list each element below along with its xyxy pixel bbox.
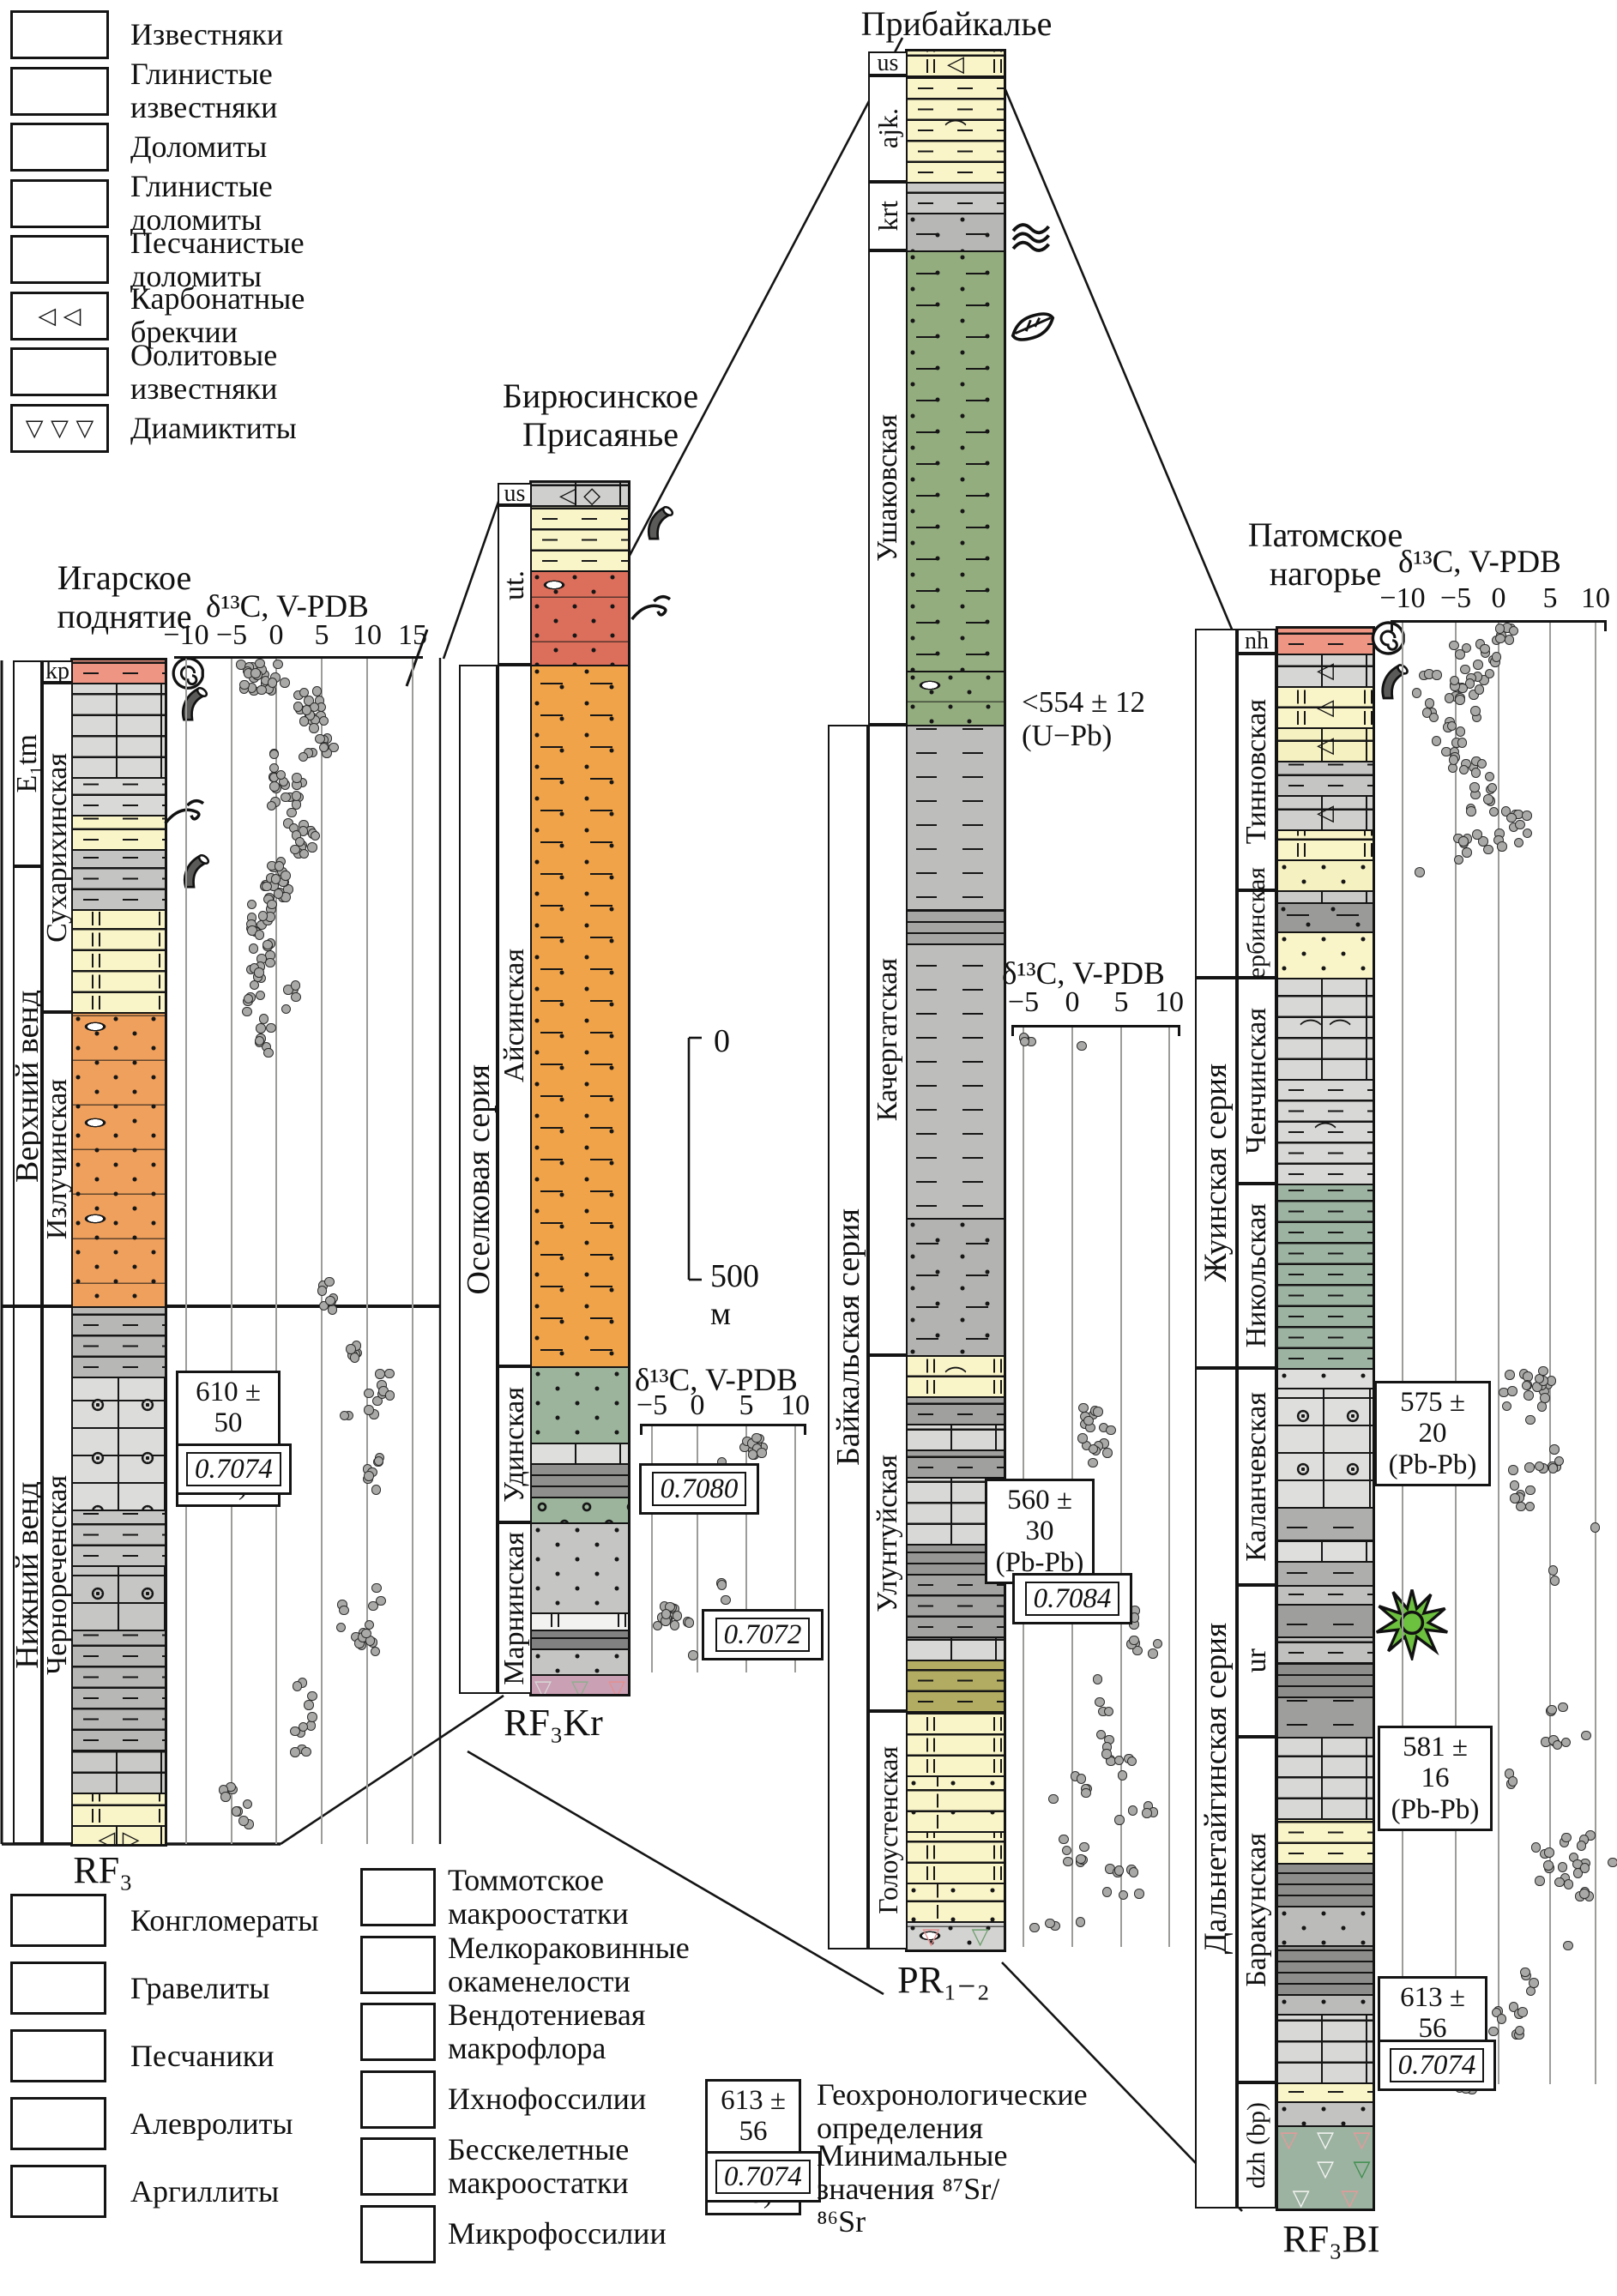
legend-icon-box [360, 2070, 436, 2129]
data-point [267, 900, 277, 910]
diagram-line [443, 485, 504, 659]
label-cell-igarka-3: kp [42, 660, 73, 683]
diamictite-glyph: ▽ [1317, 2156, 1334, 2182]
diamictite-glyph: ▽ [571, 1676, 588, 1694]
formation-label: nh [1245, 628, 1269, 655]
data-point [1457, 738, 1468, 748]
scale-bottom-label: 500 м [710, 1257, 759, 1333]
label-cell-birjusa-1: us [498, 483, 532, 505]
data-point [271, 874, 281, 884]
segment-patom-7 [1278, 859, 1373, 890]
data-point [1510, 1480, 1520, 1491]
segment-pribaikal-12 [908, 1424, 1004, 1449]
data-point [757, 1448, 767, 1458]
formation-label: us [878, 50, 899, 77]
label-cell-patom-6: Ченчинская [1237, 978, 1276, 1184]
data-point [1462, 847, 1472, 858]
axis-end-tick [1011, 1025, 1014, 1036]
formation-label: E₁tm [11, 734, 44, 793]
data-point [292, 773, 302, 783]
data-point [291, 992, 301, 1003]
data-point [239, 680, 250, 690]
segment-patom-0 [1278, 629, 1373, 654]
legend-swatch-limestone [10, 10, 109, 59]
gridline [185, 658, 187, 1844]
gridline [366, 658, 368, 1844]
label-cell-patom-5: Жербинская [1237, 890, 1276, 978]
horn-icon [172, 684, 212, 723]
segment-birjusa-1 [532, 505, 628, 570]
legend-glyph: ▽ ▽ ▽ [13, 407, 106, 450]
legend-label: Глинистые известняки [130, 62, 277, 121]
sr-value: 0.7084 [1025, 1582, 1120, 1616]
segment-patom-17 [1278, 1540, 1373, 1561]
segment-igarka-9 [73, 1510, 165, 1565]
label-cell-igarka-2: Нижний венд [13, 1306, 42, 1844]
data-point [368, 1601, 378, 1612]
segment-patom-5: ◁ [1278, 795, 1373, 829]
age-method: (Pb-Pb) [1384, 1449, 1481, 1480]
segment-birjusa-4 [532, 1366, 628, 1443]
data-point [256, 1023, 266, 1034]
segment-birjusa-8 [532, 1522, 628, 1612]
segment-igarka-4 [73, 849, 165, 909]
segment-birjusa-11 [532, 1648, 628, 1674]
segment-birjusa-7 [532, 1497, 628, 1522]
axis-end-tick [804, 1424, 806, 1435]
formation-label: Качергатская [872, 958, 904, 1121]
column-igarka: ◁ ▷ [70, 658, 167, 1847]
lithology-glyph: ⌒ [908, 1357, 1004, 1396]
age-label-pribaikal: PR₁₋₂ [879, 1958, 1008, 2002]
segment-igarka-1 [73, 683, 165, 777]
sr-legend-label: Минимальные значения ⁸⁷Sr/⁸⁶Sr [817, 2148, 1007, 2230]
diagram-line [1002, 81, 1240, 648]
label-cell-patom-2: Дальнетайгинская серия [1195, 1368, 1237, 2209]
data-point [1063, 1857, 1073, 1867]
data-point [1475, 684, 1485, 695]
segment-patom-28 [1278, 1945, 1373, 1994]
data-point [1473, 660, 1483, 670]
data-point [371, 1583, 382, 1594]
age-method: (Pb-Pb) [1387, 1794, 1483, 1825]
data-point [1558, 1702, 1568, 1713]
gridline [1120, 1027, 1122, 1947]
gridline [1168, 1027, 1170, 1947]
data-point [1508, 1776, 1518, 1787]
axis-end-tick [1178, 1025, 1180, 1036]
data-point [364, 1389, 374, 1399]
label-cell-birjusa-0: Оселковая серия [459, 665, 498, 1694]
data-point [304, 1700, 314, 1710]
segment-pribaikal-11 [908, 1396, 1004, 1424]
axis-line [174, 656, 423, 659]
legend-swatch-sanddol [10, 235, 109, 284]
formation-label: Айсинская [498, 949, 531, 1082]
formation-label: us [504, 480, 526, 508]
lithology-glyph: ▽▽▽▽▽▽▽▽ [1278, 2127, 1373, 2209]
data-point [274, 889, 284, 899]
label-cell-igarka-6: Чернореченская [42, 1306, 73, 1844]
label-cell-igarka-4: Сухарихинская [42, 683, 73, 1012]
data-point [290, 1747, 300, 1757]
lithology-glyph: ▽▽▽▽ [532, 1676, 628, 1694]
legend-swatch-argillite [10, 2165, 106, 2218]
data-point [273, 660, 283, 670]
formation-label: Улунтуйская [872, 1455, 904, 1612]
legend-swatch-limestone: ◁ ◁ [10, 292, 109, 340]
formation-label: ut. [498, 570, 531, 600]
sr-example-box: 0.7074 [705, 2151, 821, 2203]
tick-label: −10 [1373, 582, 1433, 615]
lithology-glyph: ◁ [1278, 655, 1373, 686]
column-birjusa: ◁ ◇▽▽▽▽ [529, 480, 631, 1696]
age-annotation: 560 ± 30(Pb-Pb) [985, 1479, 1095, 1584]
formation-label: Байкальская серия [830, 1208, 867, 1466]
data-point [255, 659, 265, 669]
data-point [1537, 1401, 1548, 1412]
age-method: (U−Pb) [1022, 720, 1162, 753]
legend-label: Оолитовые известняки [130, 342, 277, 401]
formation-label: Удинская [498, 1387, 531, 1503]
data-point [1083, 1416, 1094, 1426]
segment-igarka-12 [73, 1750, 165, 1793]
data-point [1488, 2027, 1499, 2037]
data-point [1535, 1876, 1545, 1886]
segment-pribaikal-10: ⌒ [908, 1355, 1004, 1396]
axis-end-tick [640, 1424, 643, 1435]
waves-icon [1009, 211, 1062, 264]
data-point [1505, 635, 1515, 645]
lithology-glyph: ◁ [1278, 688, 1373, 727]
data-point [1522, 811, 1532, 821]
age-label-igarka: RF₃ [47, 1848, 159, 1892]
data-point [1077, 1774, 1087, 1784]
data-point [1524, 1462, 1535, 1473]
segment-patom-23 [1278, 1696, 1373, 1737]
data-point [301, 1747, 311, 1757]
horn-icon [1372, 660, 1413, 702]
data-point [1483, 794, 1493, 805]
data-point [1483, 845, 1493, 855]
data-point [299, 716, 310, 726]
segment-birjusa-9 [532, 1612, 628, 1630]
data-point [281, 792, 291, 803]
segment-patom-1: ◁ [1278, 654, 1373, 686]
data-point [1523, 829, 1533, 839]
data-point [1540, 1393, 1550, 1403]
segment-patom-31 [1278, 2082, 1373, 2101]
axis-line [1391, 620, 1606, 623]
data-point [1415, 867, 1425, 877]
legend-label: Аргиллиты [130, 2160, 279, 2223]
segment-birjusa-10 [532, 1630, 628, 1648]
data-point [1469, 782, 1480, 792]
data-point [375, 1369, 385, 1379]
data-point [1563, 1941, 1573, 1951]
formation-label: Никольская [1240, 1203, 1273, 1347]
label-cell-patom-7: Никольская [1237, 1184, 1276, 1368]
data-point [281, 871, 291, 881]
legend-swatch-dolomite [10, 123, 109, 172]
horn-icon [638, 503, 678, 542]
data-point [1543, 1860, 1554, 1871]
data-point [280, 678, 290, 688]
legend-label: Песчанистые доломиты [130, 230, 305, 289]
segment-birjusa-3 [532, 665, 628, 1366]
data-point [1506, 813, 1517, 823]
legend-swatch-sandstone [10, 2029, 106, 2082]
legend-label: Песчаники [130, 2024, 275, 2088]
data-point [1590, 1522, 1601, 1533]
age-value: 581 ± 16 [1403, 1732, 1468, 1793]
segment-patom-24 [1278, 1737, 1373, 1818]
formation-label: Дальнетайгинская серия [1198, 1623, 1234, 1954]
segment-patom-4 [1278, 761, 1373, 795]
data-point [1134, 1889, 1144, 1899]
legend-glyph: ◁ ◁ [13, 294, 106, 338]
data-point [307, 842, 317, 853]
segment-igarka-7 [73, 1306, 165, 1377]
legend-icon-box [360, 2137, 436, 2196]
data-point [325, 1296, 335, 1306]
label-cell-patom-0 [1195, 629, 1237, 978]
data-point [1581, 1731, 1591, 1741]
data-point [1470, 706, 1481, 716]
data-point [1095, 1697, 1105, 1708]
tick-label: 10 [1566, 582, 1617, 615]
segment-igarka-6 [73, 1012, 165, 1306]
data-point [1525, 1485, 1536, 1496]
segment-pribaikal-1: ⌒ [908, 75, 1004, 182]
data-point [748, 1449, 758, 1460]
age-annotation: <554 ± 12(U−Pb) [1015, 683, 1169, 756]
segment-igarka-11 [73, 1630, 165, 1750]
legend-label: Ихнофоссилии [448, 2065, 646, 2134]
lithology-glyph: ◁ [1278, 729, 1373, 761]
sr-value-box: 0.7080 [639, 1463, 759, 1515]
data-point [1449, 755, 1459, 765]
segment-igarka-8 [73, 1377, 165, 1510]
age-annotation: 575 ± 20(Pb-Pb) [1374, 1381, 1491, 1486]
data-point [292, 799, 302, 810]
label-cell-birjusa-5: Марнинская [498, 1522, 532, 1694]
data-point [1445, 693, 1455, 703]
data-point [1497, 841, 1507, 852]
data-point [1579, 1889, 1590, 1899]
legend-label: Известняки [130, 5, 283, 64]
segment-patom-20 [1278, 1604, 1373, 1636]
formation-label: Баракунская [1240, 1833, 1273, 1987]
legend-icon-box [360, 1868, 436, 1926]
column-pribaikal: ◁⌒⌒▽▽ [905, 49, 1006, 1952]
legend-swatch-clayey [10, 67, 109, 116]
data-point [1456, 726, 1466, 737]
data-point [292, 791, 302, 801]
data-point [1102, 1448, 1113, 1458]
segment-patom-12: ⌒ [1278, 1079, 1373, 1184]
formation-label: dzh (bp) [1242, 2102, 1271, 2189]
data-point [1458, 836, 1469, 847]
legend-icon-box [360, 2205, 436, 2263]
legend-label: Алевролиты [130, 2092, 293, 2155]
leaf-icon [1006, 300, 1059, 353]
data-point [1045, 1919, 1055, 1929]
data-point [1529, 1978, 1539, 1988]
data-point [371, 1485, 382, 1495]
segment-patom-19 [1278, 1585, 1373, 1604]
data-point [1081, 1788, 1091, 1799]
ichno-icon [628, 583, 676, 631]
legend-swatch-silt [10, 2097, 106, 2150]
data-point [1538, 1366, 1548, 1377]
data-point [688, 1650, 698, 1660]
segment-birjusa-2 [532, 570, 628, 665]
sr-value: 0.7072 [715, 1618, 811, 1652]
scale-top-label: 0 [714, 1022, 730, 1060]
age-label-patom: RF₃BI [1254, 2217, 1409, 2261]
data-point [1531, 1842, 1542, 1853]
data-point [1118, 1770, 1128, 1781]
data-point [309, 723, 319, 733]
axis-end-tick [1391, 620, 1393, 631]
tick-label: 10 [765, 1389, 825, 1422]
segment-patom-33: ▽▽▽▽▽▽▽▽ [1278, 2125, 1373, 2209]
sr-value: 0.7074 [1390, 2048, 1485, 2082]
label-cell-igarka-5: Излучинская [42, 1012, 73, 1306]
data-point [1507, 1386, 1517, 1396]
stratigraphic-correlation-diagram: ИзвестнякиГлинистые известнякиДоломитыГл… [0, 0, 1617, 2296]
data-point [1550, 1576, 1560, 1586]
age-value: 575 ± 20 [1400, 1387, 1465, 1449]
data-point [1114, 1815, 1125, 1825]
diamictite-glyph: ▽ [534, 1676, 552, 1694]
data-point [1558, 1862, 1568, 1872]
segment-igarka-3 [73, 815, 165, 849]
segment-pribaikal-17 [908, 1636, 1004, 1660]
legend-swatch-oolite [10, 347, 109, 396]
formation-label: ur [1240, 1648, 1273, 1672]
lithology-glyph: ⌒ [908, 77, 1004, 182]
segment-patom-27 [1278, 1906, 1373, 1945]
label-cell-patom-9: ur [1237, 1585, 1276, 1737]
formation-label: Оселковая серия [460, 1064, 498, 1294]
legend-label: Томмотское макроостатки [448, 1863, 629, 1931]
diamictite-glyph: ▽ [1281, 2127, 1298, 2153]
data-point [307, 1691, 317, 1702]
segment-patom-22 [1278, 1662, 1373, 1696]
data-point [1029, 1923, 1040, 1933]
data-point [1522, 1381, 1532, 1391]
segment-birjusa-12: ▽▽▽▽ [532, 1674, 628, 1694]
data-point [1517, 2007, 1528, 2017]
legend-label: Мелкораковинные окаменелости [448, 1931, 690, 1999]
data-point [1466, 806, 1476, 817]
formation-label: Сухарихинская [41, 753, 74, 943]
segment-patom-32 [1278, 2101, 1373, 2125]
segment-igarka-2 [73, 777, 165, 815]
lithology-glyph: ⌒ [1278, 1081, 1373, 1184]
star-icon [1374, 1585, 1450, 1660]
data-point [307, 1712, 317, 1722]
data-point [238, 1816, 249, 1826]
lithology-glyph: ▽▽ [908, 1923, 1004, 1949]
label-cell-pribaikal-7: Голоустенская [868, 1711, 908, 1949]
legend-swatch-conglomerate [10, 1894, 106, 1947]
data-point [242, 1007, 252, 1017]
data-point [670, 1620, 680, 1630]
axis-end-tick [1604, 620, 1607, 631]
data-point [364, 1471, 374, 1481]
segment-pribaikal-7 [908, 909, 1004, 943]
formation-label: Чернореченская [41, 1475, 74, 1675]
segment-patom-29 [1278, 1994, 1373, 2014]
segment-igarka-0 [73, 660, 165, 683]
lithology-glyph: ◁ ▷ [73, 1827, 165, 1844]
label-cell-patom-8: Каланчевская [1237, 1368, 1276, 1585]
sr-value-box: 0.7074 [1378, 2040, 1496, 2091]
data-point [1059, 1835, 1069, 1845]
diamictite-glyph: ▽ [1293, 2185, 1310, 2209]
lithology-glyph: ⌒ ⌒ [1278, 979, 1373, 1079]
data-point [1508, 1465, 1518, 1475]
segment-pribaikal-21 [908, 1831, 1004, 1883]
legend-swatch-claydol [10, 179, 109, 228]
age-value: 613 ± 56 [1400, 1982, 1465, 2044]
data-point [350, 1353, 360, 1363]
data-point [1471, 768, 1481, 778]
axis-line [640, 1424, 805, 1426]
data-point [1608, 1858, 1617, 1868]
data-point [1480, 644, 1490, 654]
segment-pribaikal-18 [908, 1660, 1004, 1711]
segment-pribaikal-20 [908, 1775, 1004, 1831]
label-cell-birjusa-4: Удинская [498, 1366, 532, 1522]
data-point [1515, 820, 1525, 830]
data-point [339, 1606, 349, 1616]
axis-title-patom: δ¹³C, V-PDB [1398, 544, 1561, 581]
segment-patom-14 [1278, 1368, 1373, 1388]
data-point [293, 1681, 303, 1691]
tick-label: 10 [1139, 986, 1199, 1019]
legend-label: Доломиты [130, 118, 267, 177]
segment-pribaikal-8 [908, 943, 1004, 1218]
segment-patom-30 [1278, 2014, 1373, 2082]
data-point [1544, 1847, 1554, 1858]
data-point [717, 1580, 727, 1590]
formation-label: Ушаковская [872, 414, 904, 562]
formation-label: Каланчевская [1240, 1392, 1273, 1562]
data-point [1101, 1749, 1112, 1759]
data-point [1432, 670, 1442, 680]
data-point [1487, 783, 1498, 793]
segment-birjusa-6 [532, 1463, 628, 1497]
data-point [302, 705, 312, 715]
data-point [254, 967, 264, 978]
age-annotation: 581 ± 16(Pb-Pb) [1378, 1726, 1493, 1831]
segment-pribaikal-4 [908, 250, 1004, 671]
label-cell-pribaikal-1: us [868, 51, 908, 75]
data-point [1549, 1444, 1560, 1455]
data-point [1455, 649, 1465, 660]
data-point [1547, 1705, 1557, 1715]
segment-patom-18 [1278, 1561, 1373, 1585]
label-cell-birjusa-2: ut. [498, 505, 532, 665]
data-point [249, 943, 259, 954]
gridline [1402, 622, 1403, 2084]
segment-patom-21 [1278, 1636, 1373, 1662]
data-point [751, 1433, 762, 1443]
